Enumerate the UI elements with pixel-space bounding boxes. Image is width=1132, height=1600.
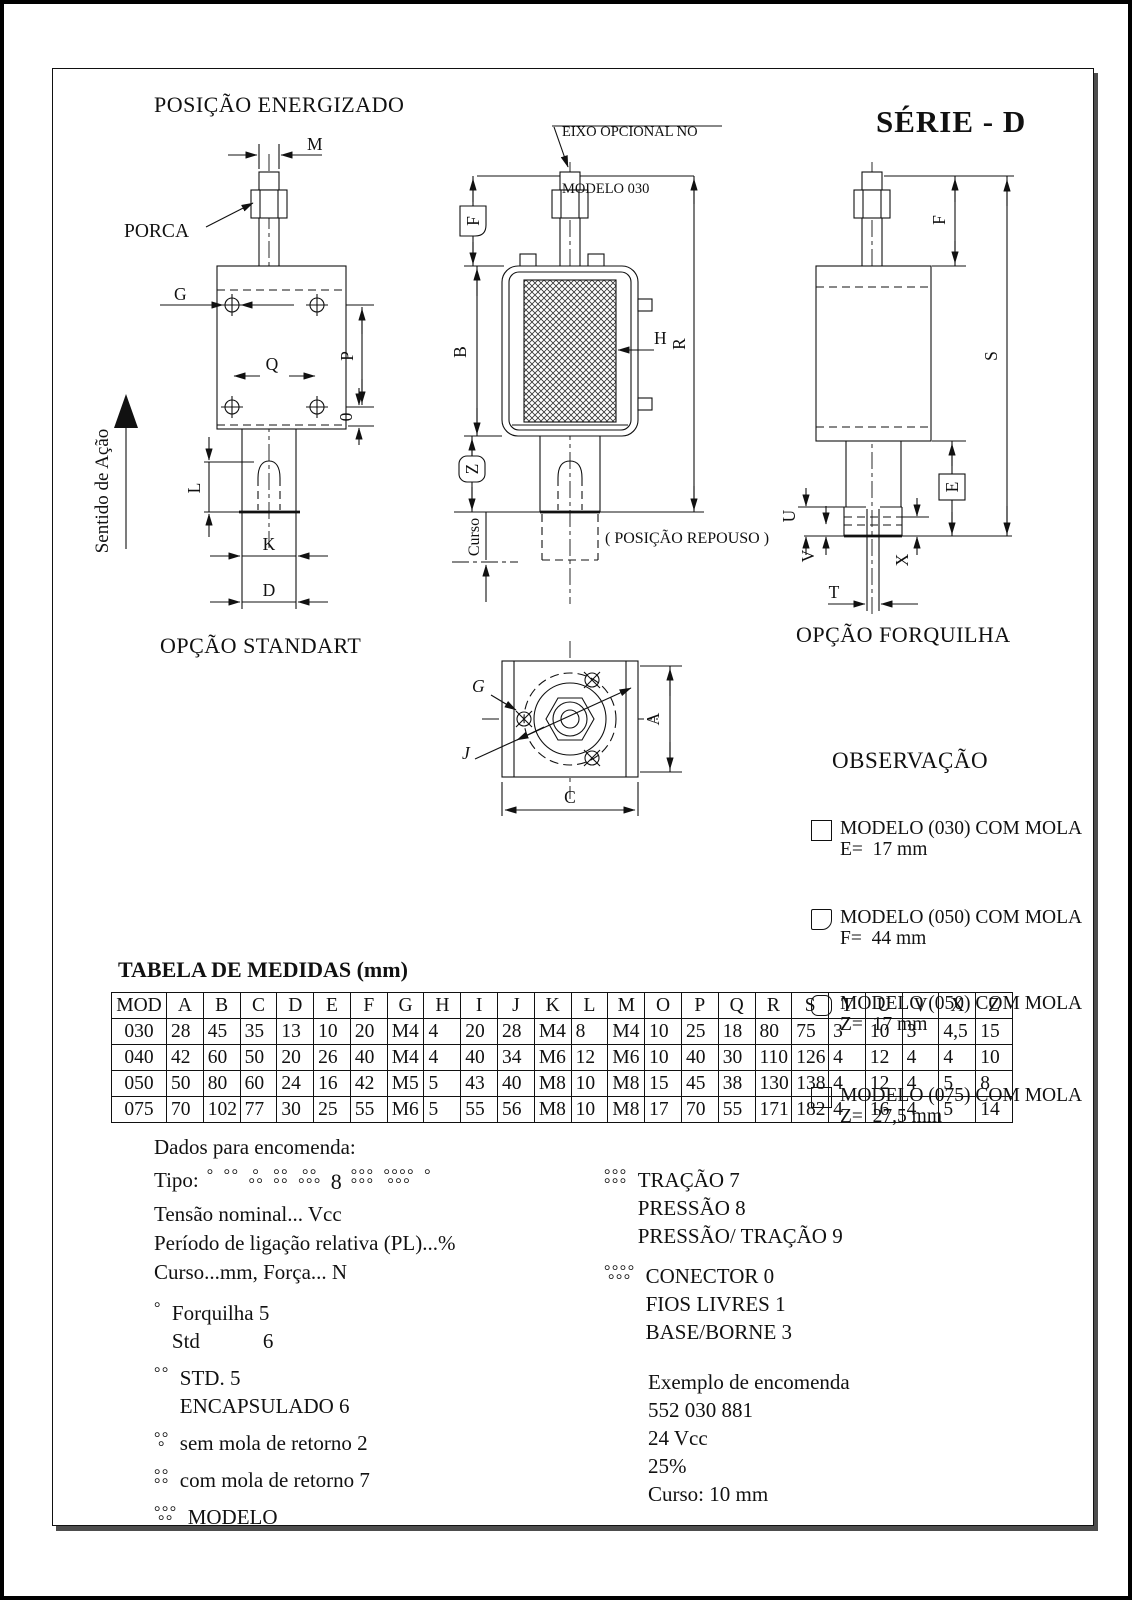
legend-item: °°°°°MODELO [154,1503,455,1531]
legend-line: com mola de retorno 7 [180,1466,370,1494]
eixo-line1: EIXO OPCIONAL NO [562,123,698,142]
table-cell: 20 [277,1045,314,1071]
table-header-cell: O [645,993,682,1019]
table-cell: 5 [939,1071,976,1097]
table-cell: 8 [571,1019,608,1045]
table-header-cell: L [571,993,608,1019]
table-cell: 50 [167,1071,204,1097]
legend-item: °°°°com mola de retorno 7 [154,1466,455,1494]
code-dot-symbol: ° [424,1171,432,1180]
table-cell: 40 [350,1045,387,1071]
legend-line: CONECTOR 0 [646,1262,792,1290]
table-header-cell: G [387,993,424,1019]
table-cell: M4 [608,1019,645,1045]
title-serie-d: SÉRIE - D [876,104,1026,140]
exemplo-block: Exemplo de encomenda 552 030 881 24 Vcc … [648,1368,850,1508]
code-dot-symbol: °°°° [154,1471,170,1489]
table-cell: 182 [792,1097,829,1123]
exemplo-title: Exemplo de encomenda [648,1368,850,1396]
table-header-cell: Z [976,993,1013,1019]
table-cell: 4 [902,1045,939,1071]
legend-line: ENCAPSULADO 6 [180,1392,350,1420]
label-eixo-opcional: EIXO OPCIONAL NO MODELO 030 [562,85,698,237]
legend-item: °°STD. 5ENCAPSULADO 6 [154,1364,455,1420]
table-cell: 4 [829,1045,866,1071]
table-header-cell: A [167,993,204,1019]
observacao-value: E= 17 mm [840,839,1082,860]
legend-line: MODELO [188,1503,278,1531]
code-dot-symbol: 8 [331,1171,342,1193]
table-header-cell: K [534,993,571,1019]
code-dot-symbol: °°°°° [298,1171,322,1189]
table-cell: 28 [167,1019,204,1045]
table-cell: M4 [387,1019,424,1045]
table-cell: 30 [718,1045,755,1071]
table-header-cell: H [424,993,461,1019]
table-header-cell: I [461,993,498,1019]
table-cell: 60 [240,1071,277,1097]
table-header-cell: V [902,993,939,1019]
table-cell: 075 [112,1097,167,1123]
legend-line: Forquilha 5 [172,1299,274,1327]
table-cell: 56 [498,1097,535,1123]
table-cell: 14 [976,1097,1013,1123]
exemplo-line: Curso: 10 mm [648,1480,850,1508]
observacao-item: MODELO (030) COM MOLAE= 17 mm [811,818,1061,860]
table-cell: 4 [939,1045,976,1071]
table-cell: 55 [461,1097,498,1123]
table-cell: 5 [424,1071,461,1097]
table-cell: M6 [608,1045,645,1071]
table-header-cell: MOD [112,993,167,1019]
table-header-cell: M [608,993,645,1019]
table-cell: M6 [387,1097,424,1123]
table-cell: 24 [277,1071,314,1097]
exemplo-line: 24 Vcc [648,1424,850,1452]
table-cell: 35 [240,1019,277,1045]
table-cell: 4 [902,1071,939,1097]
legend-item: °°°sem mola de retorno 2 [154,1429,455,1457]
exemplo-line: 552 030 881 [648,1396,850,1424]
table-cell: 42 [167,1045,204,1071]
table-cell: 5 [424,1097,461,1123]
table-row: 040426050202640M444034M612M6104030110126… [112,1045,1013,1071]
table-cell: 10 [571,1071,608,1097]
table-cell: M8 [534,1097,571,1123]
table-cell: 30 [277,1097,314,1123]
table-header-cell: T [829,993,866,1019]
table-header-cell: R [755,993,792,1019]
table-header-cell: S [792,993,829,1019]
table-cell: M8 [608,1097,645,1123]
table-cell: 20 [350,1019,387,1045]
table-cell: 80 [755,1019,792,1045]
table-cell: 4 [902,1097,939,1123]
table-cell: 10 [645,1045,682,1071]
tipo-label: Tipo: [154,1168,199,1193]
table-cell: 26 [314,1045,351,1071]
table-cell: 34 [498,1045,535,1071]
title-posicao-energizado: POSIÇÃO ENERGIZADO [154,92,404,118]
code-dot-symbol: °° [154,1369,170,1378]
legend-item: °Forquilha 5Std 6 [154,1299,455,1355]
table-cell: M4 [387,1045,424,1071]
table-cell: 25 [681,1019,718,1045]
table-cell: 38 [718,1071,755,1097]
table-cell: 4 [424,1045,461,1071]
legend-line: sem mola de retorno 2 [180,1429,368,1457]
table-cell: 8 [976,1071,1013,1097]
table-cell: 110 [755,1045,792,1071]
table-cell: 16 [865,1097,902,1123]
code-dot-symbol: °°°°°° [604,1171,628,1189]
encomenda-right-section: °°°°°°TRAÇÃO 7PRESSÃO 8PRESSÃO/ TRAÇÃO 9… [604,1154,850,1508]
table-cell: 17 [645,1097,682,1123]
code-dot-symbol: °°° [154,1434,170,1452]
param-line: Tensão nominal... Vcc [154,1200,455,1229]
tipo-code-row: Tipo:°°°°°°°°°°°°°°°8°°°°°°°°°°°°°° [154,1168,455,1198]
table-cell: 15 [976,1019,1013,1045]
table-cell: 130 [755,1071,792,1097]
table-row: 0757010277302555M655556M810M817705517118… [112,1097,1013,1123]
table-row: 030284535131020M442028M48M41025188075310… [112,1019,1013,1045]
legend-item: °°°°°°°CONECTOR 0FIOS LIVRES 1BASE/BORNE… [604,1262,850,1346]
table-row: 050508060241642M554340M810M8154538130138… [112,1071,1013,1097]
table-cell: 10 [976,1045,1013,1071]
table-header-cell: J [498,993,535,1019]
table-title: TABELA DE MEDIDAS (mm) [118,957,408,983]
table-cell: 5 [939,1097,976,1123]
observacao-value: F= 44 mm [840,928,1082,949]
table-header-cell: U [865,993,902,1019]
table-cell: 28 [498,1019,535,1045]
table-cell: 12 [865,1071,902,1097]
table-cell: 126 [792,1045,829,1071]
table-cell: 030 [112,1019,167,1045]
table-cell: 55 [718,1097,755,1123]
code-dot-symbol: °°°°°°° [383,1171,415,1189]
table-cell: M8 [534,1071,571,1097]
table-header-cell: F [350,993,387,1019]
table-cell: 55 [350,1097,387,1123]
code-dot-symbol: °°°°°° [351,1171,375,1189]
legend-line: STD. 5 [180,1364,350,1392]
label-posicao-repouso: ( POSIÇÃO REPOUSO ) [605,530,769,548]
table-cell: M4 [534,1019,571,1045]
code-dot-symbol: °°°°°°° [604,1267,636,1285]
table-cell: 15 [645,1071,682,1097]
table-cell: 040 [112,1045,167,1071]
table-cell: 70 [167,1097,204,1123]
table-cell: 77 [240,1097,277,1123]
legend-line: PRESSÃO 8 [638,1194,843,1222]
legend-line: FIOS LIVRES 1 [646,1290,792,1318]
code-dot-symbol: °° [224,1171,240,1180]
table-cell: 43 [461,1071,498,1097]
table-cell: 050 [112,1071,167,1097]
table-cell: 25 [314,1097,351,1123]
table-cell: 20 [461,1019,498,1045]
table-cell: 50 [240,1045,277,1071]
table-cell: 10 [314,1019,351,1045]
table-cell: 70 [681,1097,718,1123]
table-cell: 4,5 [939,1019,976,1045]
table-cell: M6 [534,1045,571,1071]
table-cell: 40 [681,1045,718,1071]
table-cell: 10 [865,1019,902,1045]
legend-line: Std 6 [172,1327,274,1355]
table-cell: 171 [755,1097,792,1123]
table-cell: 138 [792,1071,829,1097]
encomenda-left-section: Dados para encomenda: Tipo:°°°°°°°°°°°°°… [154,1132,455,1531]
table-cell: 16 [314,1071,351,1097]
square-marker-icon [811,820,832,841]
title-opcao-standart: OPÇÃO STANDART [160,633,361,659]
table-header-cell: D [277,993,314,1019]
legend-item: °°°°°°TRAÇÃO 7PRESSÃO 8PRESSÃO/ TRAÇÃO 9 [604,1166,850,1250]
medidas-table: MODABCDEFGHIJKLMOPQRSTUVXZ03028453513102… [111,992,1013,1123]
code-dot-symbol: °°°°° [154,1508,178,1526]
table-header-row: MODABCDEFGHIJKLMOPQRSTUVXZ [112,993,1013,1019]
table-cell: 4 [424,1019,461,1045]
table-cell: 12 [865,1045,902,1071]
observacao-title: OBSERVAÇÃO [832,748,1061,774]
legend-line: PRESSÃO/ TRAÇÃO 9 [638,1222,843,1250]
table-cell: 13 [277,1019,314,1045]
legend-line: BASE/BORNE 3 [646,1318,792,1346]
table-header-cell: Q [718,993,755,1019]
table-cell: 42 [350,1071,387,1097]
table-cell: M5 [387,1071,424,1097]
table-cell: 4 [829,1071,866,1097]
table-cell: 40 [498,1071,535,1097]
table-header-cell: C [240,993,277,1019]
eixo-line2: MODELO 030 [562,180,698,199]
table-cell: 75 [792,1019,829,1045]
table-header-cell: P [681,993,718,1019]
table-cell: 3 [902,1019,939,1045]
legend-line: TRAÇÃO 7 [638,1166,843,1194]
code-dot-symbol: °°° [248,1171,264,1189]
table-cell: 102 [203,1097,240,1123]
observacao-item: MODELO (050) COM MOLAF= 44 mm [811,907,1061,949]
table-cell: 45 [681,1071,718,1097]
table-cell: 80 [203,1071,240,1097]
observacao-line: MODELO (030) COM MOLA [840,818,1082,839]
table-header-cell: X [939,993,976,1019]
table-cell: 18 [718,1019,755,1045]
table-header-cell: B [203,993,240,1019]
param-line: Curso...mm, Força... N [154,1258,455,1287]
table-cell: 3 [829,1019,866,1045]
datasheet-page: M PORCA G Q P 0 L K D Sentido de Ação [0,0,1132,1600]
code-dot-symbol: ° [154,1304,162,1313]
param-line: Período de ligação relativa (PL)...% [154,1229,455,1258]
exemplo-line: 25% [648,1452,850,1480]
table-cell: 12 [571,1045,608,1071]
table-cell: 10 [571,1097,608,1123]
encomenda-heading: Dados para encomenda: [154,1132,455,1162]
table-cell: 40 [461,1045,498,1071]
code-dot-symbol: ° [207,1171,215,1180]
table-cell: 4 [829,1097,866,1123]
table-header-cell: E [314,993,351,1019]
corner-marker-icon [811,909,832,930]
table-cell: 60 [203,1045,240,1071]
code-dot-symbol: °°°° [273,1171,289,1189]
title-opcao-forquilha: OPÇÃO FORQUILHA [796,622,1011,648]
table-cell: M8 [608,1071,645,1097]
table-cell: 45 [203,1019,240,1045]
table-cell: 10 [645,1019,682,1045]
observacao-line: MODELO (050) COM MOLA [840,907,1082,928]
